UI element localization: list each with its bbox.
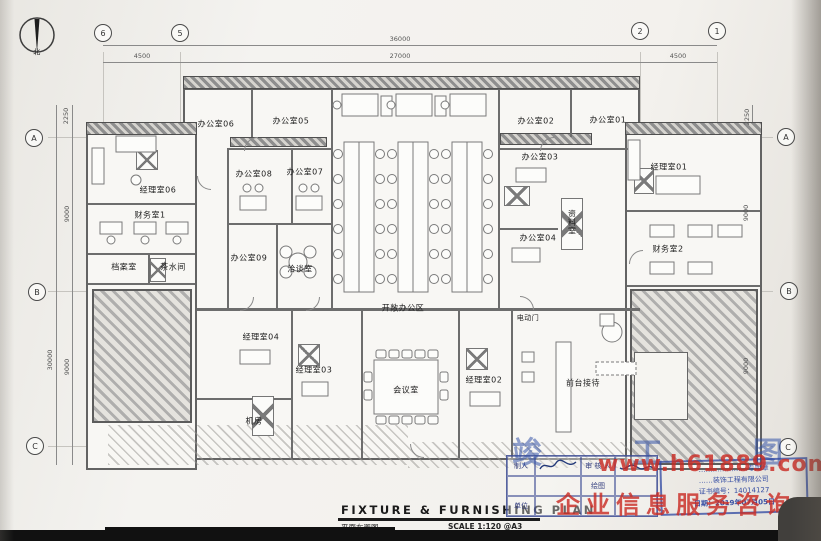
- room-label-office02: 办公室02: [518, 116, 555, 127]
- room-label-office03: 办公室03: [522, 152, 559, 163]
- title-underline: [338, 518, 540, 521]
- room-label-data-room: 资料室: [567, 209, 578, 235]
- page-edge-shadow-left: [0, 0, 14, 541]
- room-label-office01: 办公室01: [590, 115, 627, 126]
- room-label-conference: 会议室: [393, 385, 419, 396]
- room-label-machine: 机房: [246, 416, 263, 427]
- cell-unit-label: 单位: [507, 496, 535, 516]
- label-electric-door: 电动门: [517, 313, 540, 323]
- room-label-finance1: 财务室1: [134, 210, 165, 221]
- room-label-office04: 办公室04: [520, 233, 557, 244]
- north-label: 北: [33, 47, 41, 57]
- scan-black-bar: [0, 530, 821, 541]
- room-label-office09: 办公室09: [231, 253, 268, 264]
- room-label-office06: 办公室06: [198, 119, 235, 130]
- page-edge-shadow-right: [791, 0, 821, 541]
- room-label-archive: 档案室: [111, 262, 137, 273]
- room-label-finance2: 财务室2: [652, 244, 683, 255]
- watermark-url: www.h61889.com: [598, 452, 821, 477]
- room-label-manager02: 经理室02: [466, 375, 503, 386]
- room-label-manager04: 经理室04: [243, 332, 280, 343]
- room-label-manager06: 经理室06: [140, 185, 177, 196]
- room-label-office07: 办公室07: [287, 167, 324, 178]
- room-label-office08: 办公室08: [236, 169, 273, 180]
- room-label-reception: 前台接待: [566, 378, 600, 389]
- room-label-manager01: 经理室01: [651, 162, 688, 173]
- room-label-talk: 洽谈室: [287, 264, 313, 275]
- room-label-manager03: 经理室03: [296, 365, 333, 376]
- scanned-floor-plan: 北 6 5 2 1 A B C A B C 36000 4500 27000 4…: [0, 0, 821, 541]
- watermark-text: 企业信息服务咨询: [556, 485, 796, 520]
- room-label-office05: 办公室05: [273, 116, 310, 127]
- room-label-pantry: 茶水间: [160, 262, 186, 273]
- room-label-open-office: 开敞办公区: [382, 303, 425, 314]
